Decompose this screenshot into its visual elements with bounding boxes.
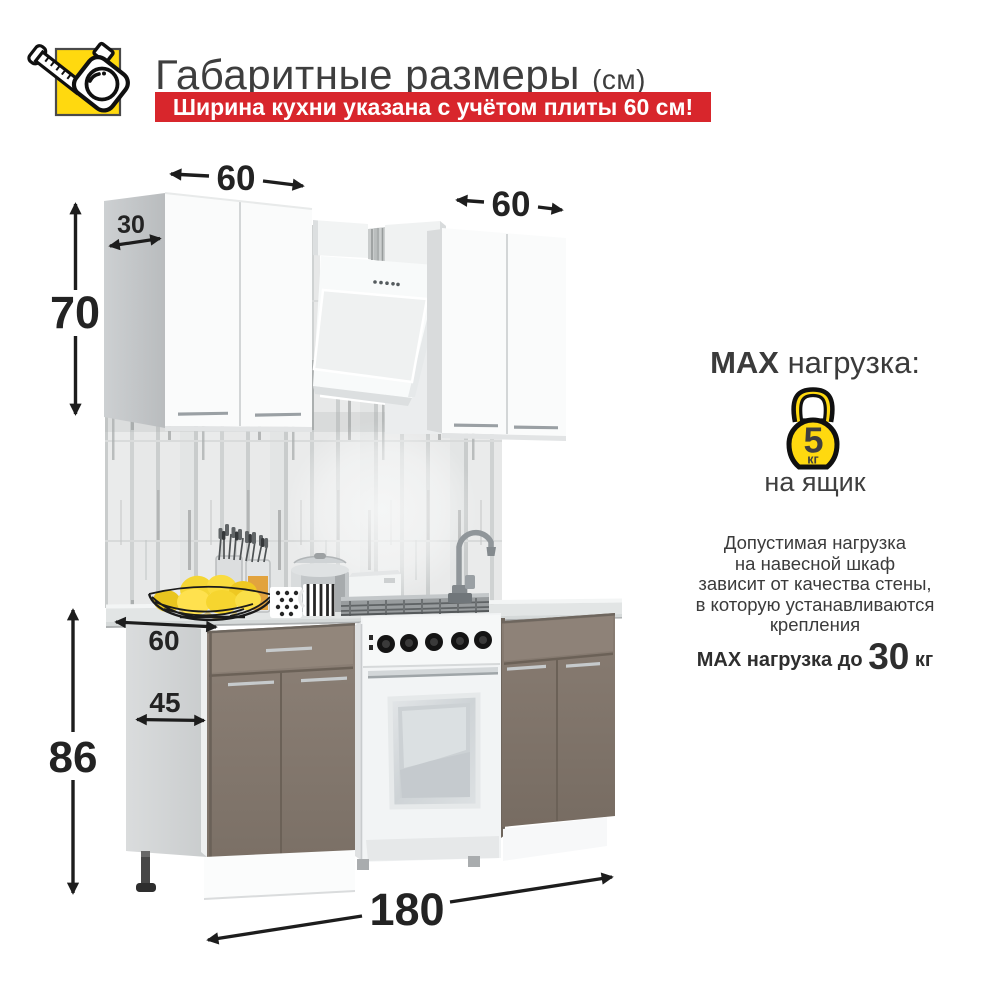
svg-text:30: 30: [117, 211, 145, 239]
svg-text:60: 60: [148, 625, 179, 656]
svg-text:60: 60: [217, 159, 256, 198]
svg-text:кг: кг: [807, 453, 818, 467]
svg-text:180: 180: [369, 884, 444, 935]
svg-text:86: 86: [49, 733, 98, 782]
svg-text:70: 70: [50, 287, 100, 338]
svg-text:60: 60: [492, 185, 531, 224]
svg-text:45: 45: [149, 687, 180, 718]
